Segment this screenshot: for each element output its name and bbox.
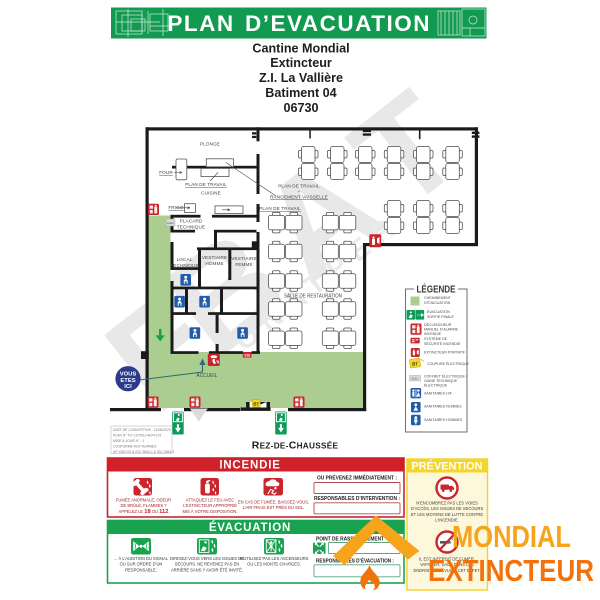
svg-text:EXTINCTEUR: EXTINCTEUR	[428, 553, 594, 588]
svg-text:ÉVACUATION: ÉVACUATION	[427, 309, 450, 314]
svg-text:D’ACCÈS, LES ISSUES DE SECOURS: D’ACCÈS, LES ISSUES DE SECOURS	[411, 506, 484, 511]
svg-text:SYSTÈME DE: SYSTÈME DE	[424, 336, 448, 341]
svg-text:... À L’AUDITION DU SIGNAL: ... À L’AUDITION DU SIGNAL	[114, 556, 169, 561]
svg-text:EXTINCTEUR PORTATIF: EXTINCTEUR PORTATIF	[424, 351, 466, 355]
svg-text:DÉCLENCHEUR: DÉCLENCHEUR	[424, 322, 452, 327]
svg-text:DE BRÛLÉ, FLAMMES ?: DE BRÛLÉ, FLAMMES ?	[121, 503, 168, 508]
svg-text:CONFORME AUX NORMES :: CONFORME AUX NORMES :	[113, 445, 158, 449]
svg-text:INCENDIE: INCENDIE	[219, 460, 280, 472]
svg-text:SÉCURITÉ INCENDIE: SÉCURITÉ INCENDIE	[424, 341, 461, 346]
svg-text:SORTIE FINALE: SORTIE FINALE	[427, 315, 454, 319]
svg-text:Cantine Mondial: Cantine Mondial	[252, 41, 349, 55]
svg-text:D’ÉVACUATION: D’ÉVACUATION	[424, 300, 451, 305]
svg-text:VESTIAIRE: VESTIAIRE	[231, 256, 256, 261]
svg-text:OU LES MONTE-CHARGES.: OU LES MONTE-CHARGES.	[247, 562, 301, 567]
svg-text:SANITAIRES FEMMES: SANITAIRES FEMMES	[424, 405, 462, 409]
svg-text:PLAN N° TO-CO7001-4074-101: PLAN N° TO-CO7001-4074-101	[113, 434, 162, 438]
svg-text:SALLE DE RESTAURATION: SALLE DE RESTAURATION	[284, 294, 342, 300]
svg-text:ÉVACUATION: ÉVACUATION	[209, 521, 291, 534]
svg-text:PLAN DE TRAVAIL: PLAN DE TRAVAIL	[185, 182, 227, 187]
svg-text:PLAN: PLAN	[167, 11, 234, 36]
svg-text:LÉGENDE: LÉGENDE	[417, 283, 456, 296]
svg-text:CUISINE: CUISINE	[201, 191, 221, 196]
svg-text:PRÉVENTION: PRÉVENTION	[412, 460, 483, 473]
svg-text:OU SUR ORDRE D’UN: OU SUR ORDRE D’UN	[120, 562, 163, 567]
svg-text:Batiment 04: Batiment 04	[265, 86, 336, 100]
svg-text:HOMME: HOMME	[205, 261, 223, 266]
svg-text:+: +	[298, 189, 301, 194]
svg-text:RESPONSABLES D’INTERVENTION :: RESPONSABLES D’INTERVENTION :	[314, 496, 400, 502]
svg-text:L’EXTINCTEUR APPROPRIÉ: L’EXTINCTEUR APPROPRIÉ	[183, 503, 237, 508]
svg-text:VOUS: VOUS	[120, 371, 137, 377]
svg-text:ELEC: ELEC	[412, 376, 419, 380]
svg-text:06730: 06730	[283, 101, 318, 115]
svg-text:FRIGO: FRIGO	[168, 205, 184, 210]
svg-text:SSI: SSI	[244, 353, 250, 357]
svg-text:Extincteur: Extincteur	[270, 56, 332, 70]
svg-text:COUPURE ÉLECTRIQUE: COUPURE ÉLECTRIQUE	[427, 361, 470, 366]
svg-text:DIRIGEZ-VOUS VERS LES ISSUES D: DIRIGEZ-VOUS VERS LES ISSUES DE	[170, 556, 244, 561]
svg-text:RESPONSABLES D’ÉVACUATION :: RESPONSABLES D’ÉVACUATION :	[316, 556, 394, 564]
svg-text:BT: BT	[412, 361, 418, 366]
svg-text:MISE À JOUR N° : 1: MISE À JOUR N° : 1	[113, 439, 144, 443]
svg-text:Z.I. La Vallière: Z.I. La Vallière	[259, 71, 343, 85]
svg-text:EN CAS DE FUMÉE, BAISSEZ-VOUS,: EN CAS DE FUMÉE, BAISSEZ-VOUS,	[238, 500, 309, 505]
svg-text:TECHNIQUE: TECHNIQUE	[177, 225, 205, 230]
svg-text:SANITAIRES HOMMES: SANITAIRES HOMMES	[424, 418, 463, 422]
svg-text:ACCUEIL: ACCUEIL	[197, 373, 218, 379]
svg-text:INCENDIE: INCENDIE	[424, 332, 442, 336]
svg-text:SECOURS. NE REVENEZ PAS EN: SECOURS. NE REVENEZ PAS EN	[175, 562, 240, 567]
svg-text:OU PRÉVENEZ IMMÉDIATEMENT :: OU PRÉVENEZ IMMÉDIATEMENT :	[317, 474, 397, 482]
svg-text:ARRIÈRE SANS Y AVOIR ÉTÉ INVIT: ARRIÈRE SANS Y AVOIR ÉTÉ INVITÉ.	[171, 567, 243, 572]
svg-text:ETES: ETES	[120, 378, 135, 384]
svg-text:FUMÉE ANORMALE, ODEUR: FUMÉE ANORMALE, ODEUR	[116, 498, 171, 503]
svg-text:PLAN DE TRAVAIL: PLAN DE TRAVAIL	[278, 184, 320, 189]
svg-text:N’ENCOMBREZ PAS LES VOIES: N’ENCOMBREZ PAS LES VOIES	[416, 501, 478, 506]
svg-text:D’EVACUATION: D’EVACUATION	[245, 11, 431, 36]
svg-text:COFFRET ÉLECTRIQUE /: COFFRET ÉLECTRIQUE /	[424, 373, 467, 378]
svg-text:ICI: ICI	[124, 384, 132, 390]
svg-text:PLACARD: PLACARD	[180, 219, 203, 224]
svg-text:ET LES MOYENS DE LUTTE CONTRE: ET LES MOYENS DE LUTTE CONTRE	[411, 512, 484, 517]
svg-text:CHEMINEMENT: CHEMINEMENT	[424, 296, 452, 300]
svg-text:PLAN DE TRAVAIL: PLAN DE TRAVAIL	[259, 206, 301, 211]
svg-text:N’UTILISEZ PAS LES ASCENSEURS: N’UTILISEZ PAS LES ASCENSEURS	[240, 556, 309, 561]
svg-text:RANGEMENT VAISSELLE: RANGEMENT VAISSELLE	[270, 195, 328, 200]
svg-text:ÉLECTRIQUE: ÉLECTRIQUE	[424, 382, 448, 387]
svg-text:RESPONSABLE.: RESPONSABLE.	[125, 567, 157, 572]
svg-text:ELEC: ELEC	[167, 221, 174, 225]
svg-text:SANITAIRES H/F: SANITAIRES H/F	[424, 392, 453, 396]
svg-text:FOUR: FOUR	[159, 170, 173, 175]
svg-text:NF X08-070 & ISO 3864-1 & ISO: NF X08-070 & ISO 3864-1 & ISO 3864-3	[113, 450, 174, 454]
svg-text:FEMME: FEMME	[235, 262, 252, 267]
svg-text:MONDIAL: MONDIAL	[452, 519, 571, 554]
svg-text:TECHNIQUE: TECHNIQUE	[170, 263, 198, 268]
svg-text:BT: BT	[253, 401, 259, 406]
svg-text:DATE DE CONCEPTION : 21/06/202: DATE DE CONCEPTION : 21/06/2020	[113, 428, 171, 432]
svg-text:ATTAQUEZ LE FEU AVEC: ATTAQUEZ LE FEU AVEC	[186, 498, 234, 503]
svg-text:REZ-DE-CHAUSSÉE: REZ-DE-CHAUSSÉE	[252, 440, 339, 452]
svg-text:LOCAL: LOCAL	[177, 257, 193, 262]
svg-text:PLONGE: PLONGE	[200, 142, 220, 147]
svg-text:MIS À VOTRE DISPOSITION.: MIS À VOTRE DISPOSITION.	[182, 509, 237, 514]
svg-text:L’AIR FRAIS EST PRÈS DU SOL.: L’AIR FRAIS EST PRÈS DU SOL.	[243, 505, 305, 510]
svg-text:GAINE TECHNIQUE: GAINE TECHNIQUE	[424, 379, 458, 383]
svg-text:VESTIAIRE: VESTIAIRE	[202, 255, 227, 260]
